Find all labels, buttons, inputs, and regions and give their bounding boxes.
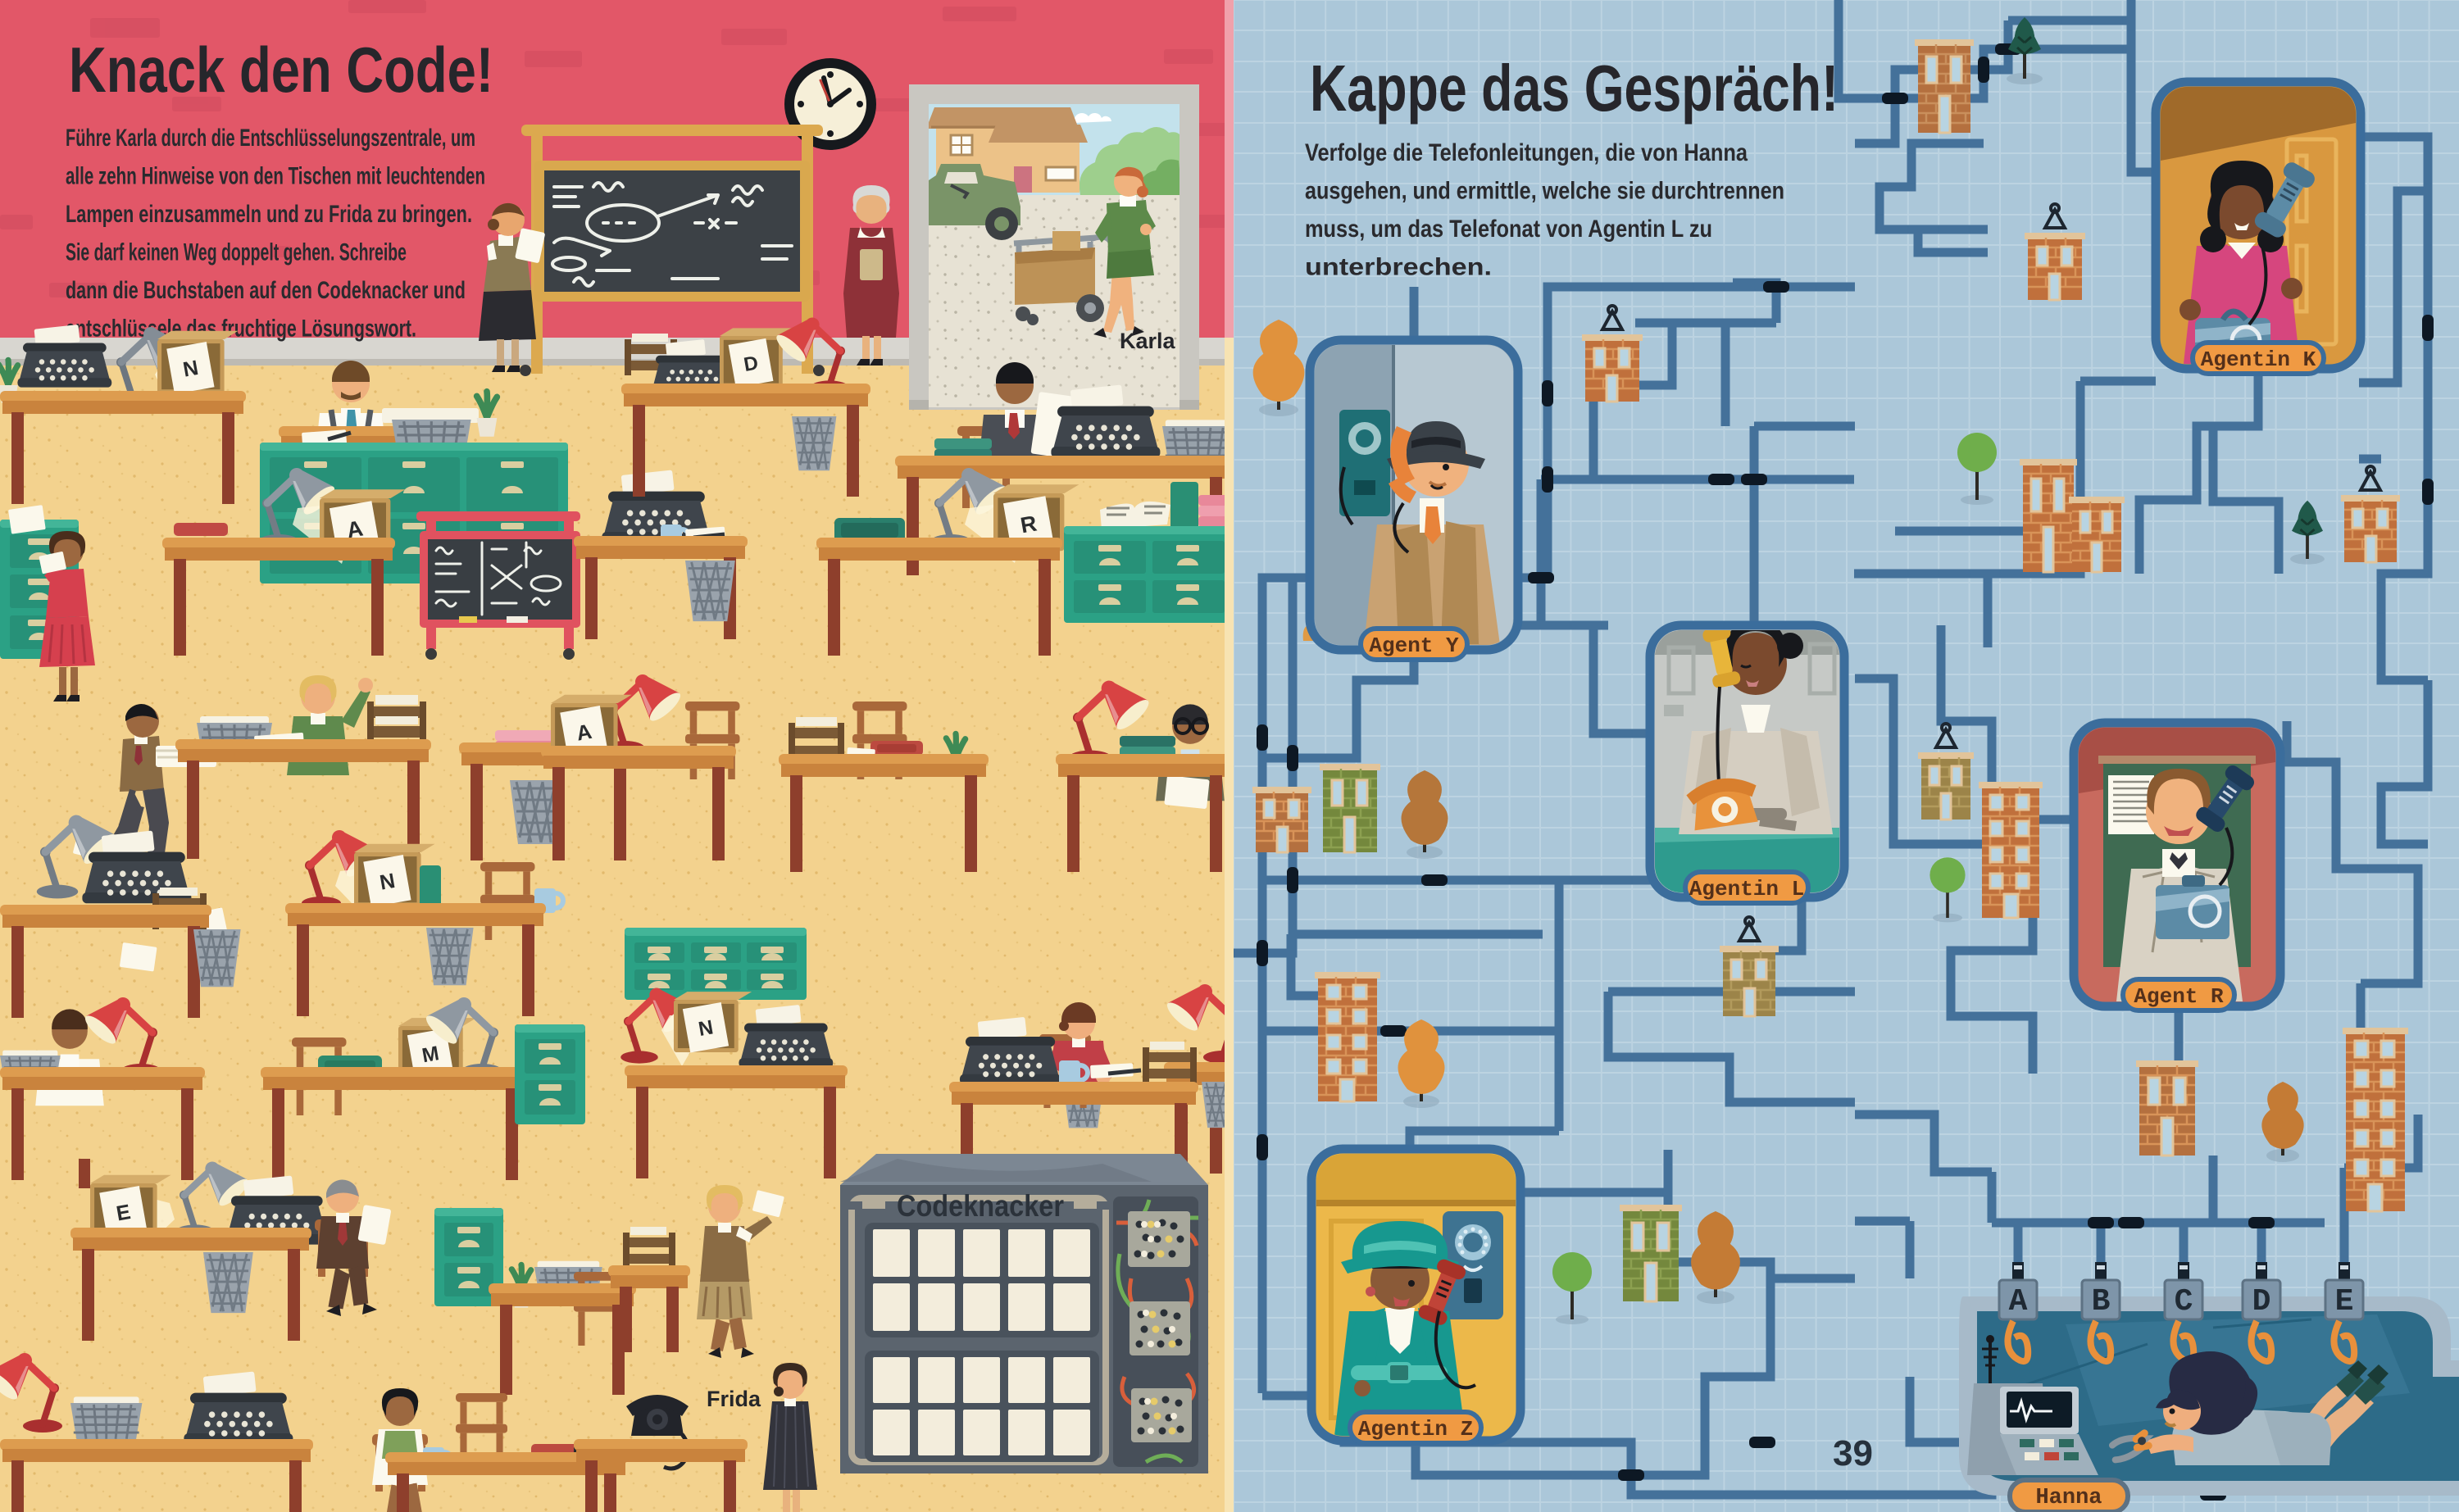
svg-text:Agent R: Agent R	[2134, 984, 2224, 1009]
svg-text:Führe Karla durch die Entschlü: Führe Karla durch die Entschlüsselungsze…	[66, 125, 475, 152]
svg-text:Kappe das Gespräch!: Kappe das Gespräch!	[1310, 52, 1839, 125]
svg-text:Frida: Frida	[707, 1387, 761, 1411]
svg-text:Knack den Code!: Knack den Code!	[69, 34, 493, 106]
svg-text:ausgehen, und ermittle, welche: ausgehen, und ermittle, welche sie durch…	[1305, 178, 1784, 205]
svg-text:Agent Y: Agent Y	[1369, 633, 1459, 658]
svg-text:Verfolge die Telefonleitungen,: Verfolge die Telefonleitungen, die von H…	[1305, 139, 1748, 166]
svg-text:E: E	[2335, 1284, 2354, 1319]
svg-text:Agentin K: Agentin K	[2201, 347, 2316, 372]
svg-text:C: C	[2175, 1284, 2193, 1319]
svg-text:Codeknacker: Codeknacker	[897, 1189, 1064, 1223]
svg-text:D: D	[2252, 1284, 2271, 1319]
svg-text:39: 39	[1833, 1433, 1873, 1473]
svg-text:B: B	[2092, 1284, 2111, 1319]
svg-text:Lampen einzusammeln und zu Fri: Lampen einzusammeln und zu Frida zu brin…	[66, 201, 472, 228]
svg-text:unterbrechen.: unterbrechen.	[1305, 254, 1492, 281]
svg-text:Hanna: Hanna	[2035, 1486, 2102, 1510]
svg-text:dann die Buchstaben auf den Co: dann die Buchstaben auf den Codeknacker …	[66, 277, 466, 304]
svg-text:Agentin Z: Agentin Z	[1358, 1417, 1473, 1442]
svg-text:Agentin L: Agentin L	[1689, 877, 1804, 901]
svg-text:A: A	[2009, 1284, 2028, 1319]
svg-text:alle zehn Hinweise von den Tis: alle zehn Hinweise von den Tischen mit l…	[66, 163, 485, 190]
svg-text:Karla: Karla	[1120, 329, 1176, 353]
svg-text:Sie darf keinen Weg doppelt ge: Sie darf keinen Weg doppelt gehen. Schre…	[66, 239, 407, 266]
svg-text:entschlüssele das fruchtige Lö: entschlüssele das fruchtige Lösungswort.	[66, 316, 416, 343]
svg-text:muss, um das Telefonat von Age: muss, um das Telefonat von Agentin L zu	[1305, 216, 1712, 243]
